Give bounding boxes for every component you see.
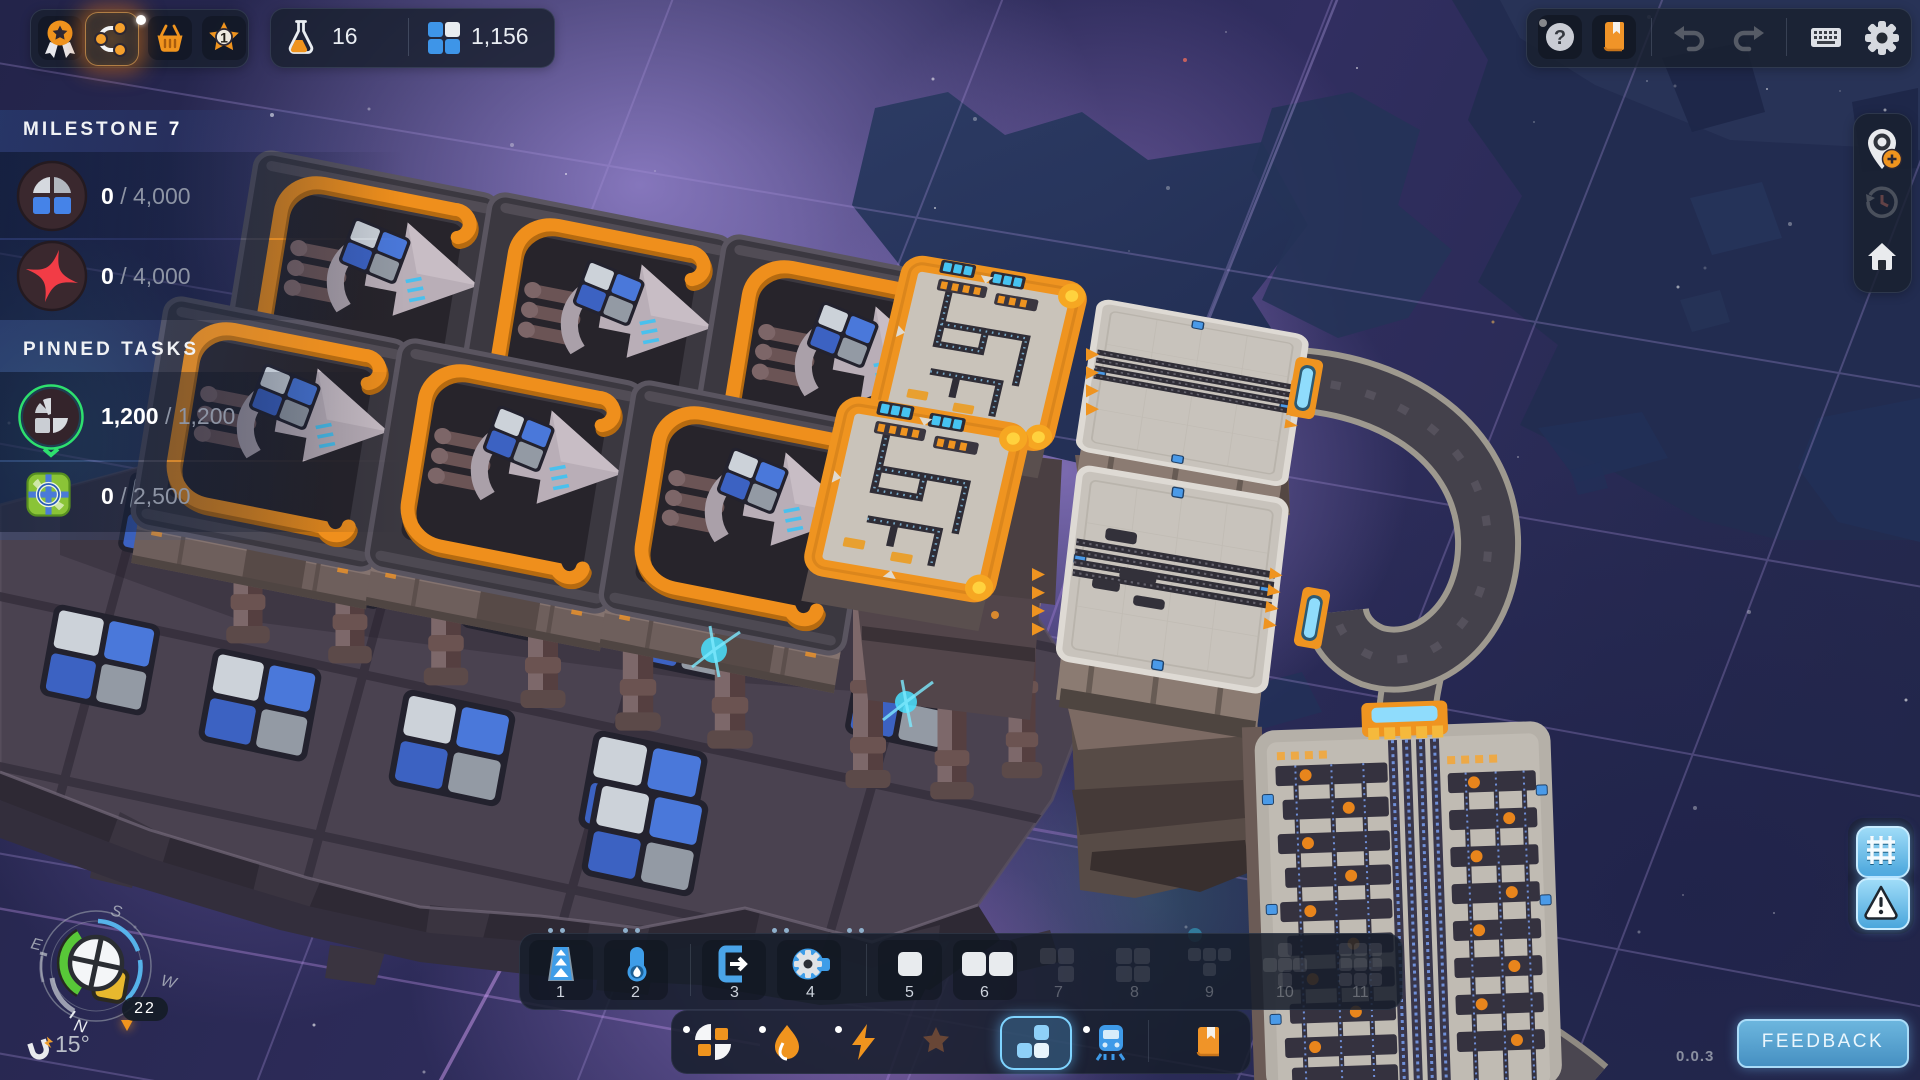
- svg-text:S: S: [109, 902, 124, 921]
- svg-text:1: 1: [220, 30, 228, 46]
- svg-text:?: ?: [1554, 27, 1566, 49]
- svg-text:W: W: [159, 972, 180, 993]
- svg-text:E: E: [29, 935, 44, 954]
